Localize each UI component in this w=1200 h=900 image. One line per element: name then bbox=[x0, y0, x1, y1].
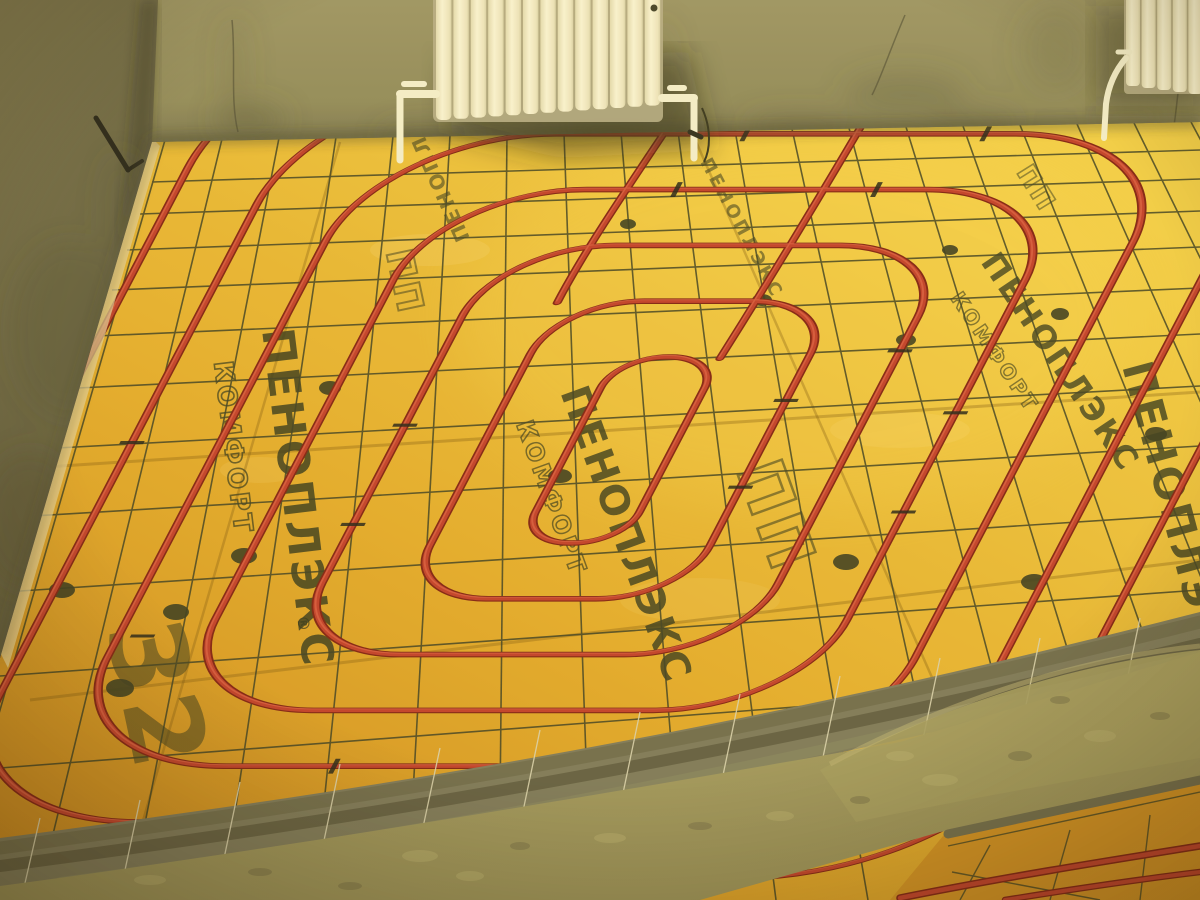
vignette bbox=[0, 0, 1200, 900]
scene-canvas: ПЕНОПЛЭКС КОМФОРТ ® ПЕНОПЛЭКС КОМФОРТ ПЕ… bbox=[0, 0, 1200, 900]
room-photo: ПЕНОПЛЭКС КОМФОРТ ® ПЕНОПЛЭКС КОМФОРТ ПЕ… bbox=[0, 0, 1200, 900]
